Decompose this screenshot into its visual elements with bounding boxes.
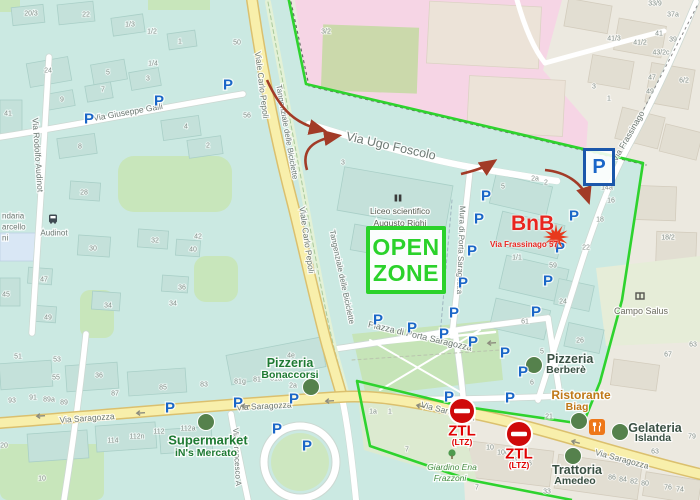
house-number: 40 — [189, 247, 197, 254]
parking-icon: P — [449, 305, 459, 322]
house-number: 1/1 — [512, 255, 522, 262]
house-number: 1a — [369, 409, 377, 416]
route-arrow — [545, 170, 588, 200]
house-number: 43/2c — [652, 50, 670, 57]
street-label: Viale Carlo Pepoli — [297, 206, 316, 274]
house-number: 41/2 — [633, 40, 647, 47]
parking-icons-layer: PPPPPPPPPPPPPPPPPPPPPPPPP — [84, 77, 579, 455]
poi-dot — [303, 379, 320, 396]
street-label: arcello — [2, 223, 26, 232]
street-label: ni — [2, 234, 8, 243]
house-number: 24 — [44, 68, 52, 75]
house-number: 2a — [531, 176, 539, 183]
house-number: 50 — [233, 40, 241, 47]
house-number: 5 — [501, 184, 505, 191]
house-number: 63 — [651, 449, 659, 456]
house-number: 9 — [60, 97, 64, 104]
house-number: 16 — [607, 198, 615, 205]
house-number: 1/4 — [148, 61, 158, 68]
parking-icon: P — [481, 188, 491, 205]
house-number: 49 — [646, 89, 654, 96]
poi-label: Giardino Ena — [427, 462, 477, 472]
house-number: 33/9 — [648, 1, 662, 8]
house-number: 26 — [576, 338, 584, 345]
oneway-arrow-icon — [488, 340, 496, 345]
house-number: 47 — [648, 75, 656, 82]
house-number: 8 — [78, 144, 82, 151]
parking-icon: P — [500, 345, 510, 362]
house-number: 83 — [200, 382, 208, 389]
parking-icon: P — [233, 395, 243, 412]
parking-icon: P — [84, 111, 94, 128]
house-number: 30 — [89, 246, 97, 253]
poi-dot — [565, 448, 582, 465]
parking-icon: P — [165, 400, 175, 417]
house-number: 5 — [106, 70, 110, 77]
house-number: 34 — [104, 303, 112, 310]
house-number: 76 — [664, 485, 672, 492]
parking-box-marker: P — [583, 148, 615, 186]
house-number: 18 — [596, 217, 604, 224]
poi-dot — [198, 414, 215, 431]
house-number: 2a — [289, 383, 297, 390]
house-number: 3 — [592, 84, 596, 91]
oneway-arrow-icon — [37, 413, 46, 418]
house-number: 112n — [129, 434, 144, 441]
house-number: 67 — [664, 352, 672, 359]
house-number: 6 — [530, 380, 534, 387]
house-number: 74 — [676, 487, 684, 494]
parking-icon: P — [439, 326, 449, 343]
parking-icon: P — [518, 364, 528, 381]
house-number: 42 — [194, 234, 202, 241]
parking-icon: P — [467, 243, 477, 260]
tree-icon — [448, 449, 455, 459]
house-number: 84 — [619, 477, 627, 484]
street-label: Via Ugo Foscolo — [345, 129, 437, 162]
poi-label: Islanda — [635, 432, 671, 444]
street-label: Tangenziale delle Biciclette — [328, 229, 357, 325]
house-number: 18/2 — [661, 235, 675, 242]
parking-box-letter: P — [592, 156, 605, 179]
house-number: 10 — [486, 445, 494, 452]
poi-label: Berberè — [546, 364, 586, 376]
poi-label: Liceo scientifico — [370, 206, 430, 216]
house-number: 41 — [655, 31, 663, 38]
house-number: 4 — [184, 124, 188, 131]
house-number: 36 — [178, 285, 186, 292]
house-number: 20/3 — [24, 11, 38, 18]
street-label: Audinot — [40, 229, 68, 238]
poi-dot — [571, 413, 588, 430]
annotation-layer: 20/3221/31/211/42453794142850563/2283032… — [0, 0, 700, 500]
house-number: 22 — [82, 12, 90, 19]
street-label: Via Giuseppe Galli — [93, 101, 164, 123]
house-number: 81 — [253, 377, 261, 384]
parking-icon: P — [458, 275, 468, 292]
parking-icon: P — [569, 208, 579, 225]
parking-icon: P — [302, 438, 312, 455]
route-arrow — [305, 136, 337, 170]
house-number: 49 — [44, 315, 52, 322]
house-number: 3/2 — [321, 29, 331, 36]
house-number: 55 — [52, 375, 60, 382]
house-number: 61 — [521, 319, 529, 326]
house-number: 56 — [243, 113, 251, 120]
parking-icon: P — [407, 320, 417, 337]
house-number: 82 — [630, 479, 638, 486]
house-number: 89 — [60, 400, 68, 407]
poi-label: Biag — [566, 401, 589, 413]
bnb-title: BnB — [511, 212, 554, 236]
house-number: 53 — [53, 357, 61, 364]
open-zone-box: OPEN ZONE — [366, 226, 446, 294]
ztl-sublabel: (LTZ) — [452, 437, 473, 447]
oneway-arrow-icon — [571, 439, 580, 446]
parking-icon: P — [272, 421, 282, 438]
open-zone-line1: OPEN — [372, 234, 439, 260]
house-number: 36 — [95, 373, 103, 380]
map-canvas[interactable]: 20/3221/31/211/42453794142850563/2283032… — [0, 0, 700, 500]
house-number: 45 — [2, 292, 10, 299]
house-number: 7 — [475, 485, 479, 492]
house-number: 112a — [180, 426, 195, 433]
house-number: 1/3 — [125, 22, 135, 29]
street-label: Via Saragozza — [59, 411, 115, 425]
parking-icon: P — [289, 391, 299, 408]
house-number: 47 — [40, 277, 48, 284]
parking-icon: P — [543, 273, 553, 290]
house-number: 3 — [146, 76, 150, 83]
poi-label: Amedeo — [554, 475, 595, 487]
house-number: 33 — [543, 489, 551, 496]
house-number: 1 — [178, 39, 182, 46]
house-number: 85 — [159, 385, 167, 392]
house-number: 34 — [169, 301, 177, 308]
house-number: 80 — [641, 481, 649, 488]
house-number: 86 — [608, 475, 616, 482]
house-number: 59 — [549, 263, 557, 270]
sport-icon — [636, 293, 644, 299]
house-number: 3 — [341, 160, 345, 167]
route-arrow — [461, 162, 493, 174]
ztl-sign: ZTL(LTZ) — [448, 398, 476, 447]
house-number: 41 — [4, 111, 12, 118]
ztl-sign: ZTL(LTZ) — [505, 421, 533, 470]
no-entry-bar — [511, 432, 527, 436]
street-label: Via Saragozza — [594, 447, 650, 471]
parking-icon: P — [373, 312, 383, 329]
house-number: 24 — [559, 299, 567, 306]
parking-icon: P — [154, 93, 164, 110]
house-number: 10 — [38, 476, 46, 483]
house-number: 51 — [14, 354, 22, 361]
parking-icon: P — [531, 304, 541, 321]
poi-label: Ristorante — [551, 388, 611, 402]
house-number: 114 — [107, 438, 118, 445]
school-icon — [395, 195, 402, 202]
poi-label: Frazzoni — [434, 473, 468, 483]
house-number: 93 — [8, 398, 16, 405]
poi-dot — [612, 424, 629, 441]
restaurant-icon — [589, 419, 605, 435]
street-label: Via Frassinago — [610, 109, 647, 163]
house-number: 5 — [540, 349, 544, 356]
street-label: Piazza di Porta Saragozza — [367, 319, 473, 353]
house-number: 1/2 — [147, 29, 157, 36]
poi-label: iN's Mercato — [175, 447, 237, 459]
house-number: 20 — [0, 443, 8, 450]
house-number: 2 — [544, 180, 548, 187]
oneway-arrow-icon — [326, 398, 335, 403]
poi-label: Campo Salus — [614, 306, 669, 316]
no-entry-bar — [454, 409, 470, 413]
house-number: 1 — [388, 409, 392, 416]
house-number: 22 — [582, 245, 590, 252]
house-number: 81g — [234, 379, 246, 386]
poi-label: Supermarket — [168, 433, 248, 448]
street-label: Via Rodolfo Audinot — [30, 117, 45, 193]
parking-icon: P — [223, 77, 233, 94]
house-number: 87 — [111, 391, 119, 398]
house-number: 2 — [206, 143, 210, 150]
house-number: 6/2 — [679, 78, 689, 85]
open-zone-line2: ZONE — [373, 260, 439, 286]
oneway-arrow-icon — [137, 410, 146, 415]
parking-icon: P — [505, 390, 515, 407]
ztl-sublabel: (LTZ) — [509, 460, 530, 470]
house-number: 39 — [669, 37, 677, 44]
house-number: 7 — [405, 447, 409, 454]
street-label: ndaria — [2, 212, 25, 221]
bus-icon — [49, 215, 57, 224]
house-number: 21 — [545, 414, 553, 421]
house-number: 7 — [101, 87, 105, 94]
poi-label: Pizzeria — [267, 356, 315, 370]
house-number: 28 — [80, 190, 88, 197]
house-number: 112 — [153, 429, 164, 436]
house-number: 41/3 — [607, 36, 621, 43]
bnb-marker: BnB Via Frassinago 57 — [482, 212, 566, 252]
bnb-address: Via Frassinago 57 — [482, 240, 566, 249]
house-number: 79 — [688, 434, 696, 441]
house-number: 37a — [667, 12, 679, 19]
house-number: 1 — [607, 96, 611, 103]
ztl-signs-layer: ZTL(LTZ)ZTL(LTZ) — [448, 398, 533, 470]
house-number: 91 — [29, 395, 37, 402]
poi-dot — [526, 357, 543, 374]
house-number: 89a — [43, 397, 55, 404]
house-number: 63 — [689, 342, 697, 349]
house-number: 32 — [151, 238, 159, 245]
parking-icon: P — [468, 334, 478, 351]
